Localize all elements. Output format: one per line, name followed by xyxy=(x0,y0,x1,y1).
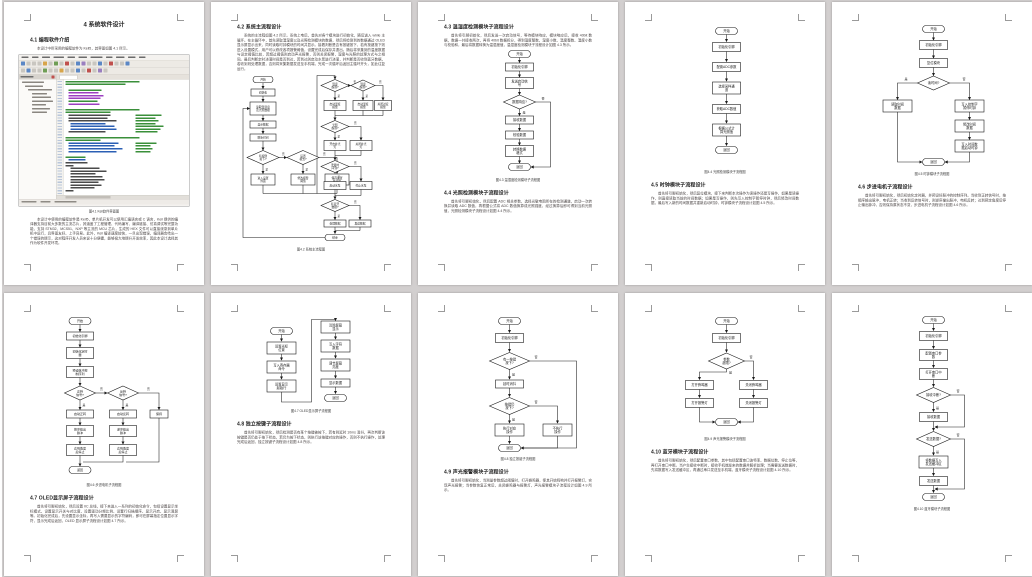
flow-connector xyxy=(522,436,558,448)
toolbar-icon xyxy=(38,69,42,73)
figure-caption: 图4.2 系统主流程图 xyxy=(237,247,385,252)
flow-node-label: 正转信号? xyxy=(76,388,84,397)
clipped-page-sliver xyxy=(0,0,2,577)
menu-label-bar xyxy=(54,57,65,59)
toolbar-icon xyxy=(27,62,31,66)
flowchart-figure: 开始初始化引脚初始化定时器预设脉冲控制序列正转信号?反转信号?启动正转按序输出脉… xyxy=(30,315,180,480)
menu-label-bar xyxy=(139,57,146,59)
document-page-1[interactable]: 4 系统软件设计4.1 编程软件介绍本设计中所采用的编程软件为 Keil5，其界… xyxy=(4,2,204,285)
flowchart-figure: 开始初始化引脚发送启动信号数据响应?接收数据校验数据转换数据格式返回否是 xyxy=(445,49,592,175)
flow-node-label: 读时间? xyxy=(928,80,940,85)
flow-node-label: 获取ADC数值 xyxy=(717,106,738,111)
flow-node-label: 有按键按下? xyxy=(259,154,267,161)
document-page-4[interactable]: 开始初始化引脚配置ADC参数选择采样通道获取ADC数值根据公式计算光照值返回图4… xyxy=(625,2,825,285)
flow-node-label: 达到角度后停止 xyxy=(74,445,86,454)
document-page-5[interactable]: 开始初始化引脚复位模块读时间?读取时间数据写入控制字暂停时钟修改时间数据写入时间… xyxy=(832,2,1032,285)
document-page-2[interactable]: 4.2 系统主流程设计系统的主流程如图 4.2 所示。系统上电后，首先对各个模块… xyxy=(211,2,411,285)
flow-node-label: 返回 xyxy=(516,164,523,169)
flowchart-figure: 开始初始化引脚配置串口参数打开串口中断接收中断?接收数据发送数据?将数据写入发送… xyxy=(859,314,1006,504)
flow-node-label: 浇灌时间到? xyxy=(331,163,339,170)
page-content: 开始设置光标位置写入寄存器命令设置显示起始行清除屏幕显示写入字符数据调节屏幕亮度… xyxy=(237,307,385,576)
flow-connector xyxy=(898,112,923,162)
flow-node-label: 初始化引脚 xyxy=(501,335,518,340)
flow-branch-label: 是 xyxy=(266,168,269,172)
section-heading: 4.2 系统主流程设计 xyxy=(237,23,385,31)
flow-connector xyxy=(738,408,754,423)
menu-label-bar xyxy=(22,57,29,59)
body-paragraph: 首先将引脚初始化，然后检测是否有某个按键被按下，若有则延时 10ms 消抖，再次… xyxy=(237,431,385,445)
figure-caption: 图4.4 光照检测模块子流程图 xyxy=(651,169,799,174)
page-content: 4.2 系统主流程设计系统的主流程如图 4.2 所示。系统上电后，首先对各个模块… xyxy=(237,16,385,285)
margin-crop-mark xyxy=(177,305,184,312)
toolbar-icon xyxy=(104,69,108,73)
flow-node-label: 将数据写入发送缓冲区 xyxy=(925,457,942,466)
flow-node-label: 显示数据 xyxy=(329,380,343,385)
toolbar-icon xyxy=(65,69,69,73)
flow-node-label: 初始化 xyxy=(259,90,267,94)
flow-branch-label: 否 xyxy=(323,152,326,156)
flow-node-label: 关闭报警灯 xyxy=(745,400,762,405)
menu-label-bar xyxy=(116,57,125,59)
flow-node-label: 写入时间数据启动时钟 xyxy=(961,141,978,150)
flow-node-label: 按键仍按下? xyxy=(505,401,515,410)
body-paragraph: 首先将引脚初始化，然后设置 IIC 总线，接下来进入一系列的初始化命令，包括设置… xyxy=(30,505,178,524)
flow-node-label: 延时消抖 xyxy=(503,381,517,386)
flow-node-label: 关闭蜂鸣器 xyxy=(745,382,762,387)
toolbar-icon xyxy=(49,69,53,73)
flow-node-label: 开始 xyxy=(723,318,730,323)
flow-branch-label: 是 xyxy=(306,168,309,172)
flow-branch-label: 否 xyxy=(957,433,960,437)
toolbar-icon xyxy=(115,62,119,66)
flow-node-label: 开始 xyxy=(278,328,285,333)
flow-branch-label: 否 xyxy=(535,355,538,359)
flow-node-label: 配置ADC参数 xyxy=(717,64,738,69)
flow-branch-label: 否 xyxy=(100,387,103,391)
section-heading: 4.1 编程软件介绍 xyxy=(30,36,178,44)
flow-branch-label: 是 xyxy=(338,175,341,179)
margin-crop-mark xyxy=(1005,305,1012,312)
editor-tab xyxy=(60,75,78,79)
toolbar-icon xyxy=(43,69,47,73)
menu-label-bar xyxy=(91,57,103,59)
flow-connector xyxy=(139,393,160,410)
margin-crop-mark xyxy=(591,14,598,21)
menu-label-bar xyxy=(106,57,113,59)
margin-crop-mark xyxy=(1005,264,1012,271)
margin-crop-mark xyxy=(177,14,184,21)
page-content: 开始初始化引脚配置串口参数打开串口中断接收中断?接收数据发送数据?将数据写入发送… xyxy=(858,307,1006,576)
keil-status-bar xyxy=(19,199,189,205)
flow-branch-label: 是 xyxy=(338,214,341,218)
menu-label-bar xyxy=(68,57,76,59)
flow-branch-label: 是 xyxy=(936,449,939,454)
page-content: 开始初始化引脚复位模块读时间?读取时间数据写入控制字暂停时钟修改时间数据写入时间… xyxy=(858,16,1006,285)
flowchart-figure: 开始初始化引脚配置ADC参数选择采样通道获取ADC数值根据公式计算光照值返回 xyxy=(652,25,799,167)
toolbar-icon xyxy=(76,69,80,73)
margin-crop-mark xyxy=(1005,555,1012,562)
flow-node-label: 刷新时间 xyxy=(258,135,269,139)
flow-node-label: 接收中断? xyxy=(926,392,941,397)
margin-crop-mark xyxy=(591,305,598,312)
flow-node-label: 启动反转 xyxy=(117,411,129,416)
flow-branch-label: 是 xyxy=(366,94,369,98)
flow-node-label: 开始 xyxy=(930,317,937,322)
section-heading: 4.9 声光报警模块子流程设计 xyxy=(444,468,592,476)
flow-branch-label: 否 xyxy=(963,77,966,81)
project-panel-header xyxy=(19,74,56,79)
flow-node-label: 读取温湿度及光照数据 xyxy=(256,105,270,112)
toolbar-icon xyxy=(54,62,58,66)
flow-branch-label: 否 xyxy=(354,80,357,84)
flow-branch-label: 是 xyxy=(512,417,515,422)
tree-item xyxy=(32,112,47,114)
toolbar-icon xyxy=(71,62,75,66)
flow-branch-label: 否 xyxy=(354,161,357,165)
toolbar-icon xyxy=(54,69,58,73)
margin-crop-mark xyxy=(591,555,598,562)
flow-branch-label: 否 xyxy=(379,80,382,84)
flow-node-label: 初始化引脚 xyxy=(72,333,87,338)
flow-node-label: 返回 xyxy=(930,159,937,164)
section-heading: 4.3 温湿度检测模块子流程设计 xyxy=(444,23,592,31)
chapter-title: 4 系统软件设计 xyxy=(30,20,178,29)
flow-branch-label: 是 xyxy=(83,403,86,407)
flow-node-label: 复位模块 xyxy=(927,60,941,65)
toolbar-icon xyxy=(126,62,130,66)
toolbar-icon xyxy=(120,62,124,66)
margin-crop-mark xyxy=(384,264,391,271)
document-page-3[interactable]: 4.3 温湿度检测模块子流程设计首先将引脚初始化，然后发送一次启动信号，等待模块… xyxy=(418,2,618,285)
toolbar-icon xyxy=(109,62,113,66)
figure-caption: 图4.8 独立按键子流程图 xyxy=(444,456,592,461)
flow-node-label: 根据公式计算光照值 xyxy=(718,125,735,134)
margin-crop-mark xyxy=(798,305,805,312)
toolbar-icon xyxy=(87,69,91,73)
flow-connector xyxy=(950,83,970,100)
code-area xyxy=(57,79,190,195)
flowchart-figure: 开始初始化引脚参数超限?打开蜂鸣器打开报警灯关闭蜂鸣器关闭报警灯返回是否 xyxy=(652,315,799,434)
flow-connector xyxy=(349,167,361,182)
figure-caption: 图4.1 Keil软件界面图 xyxy=(30,208,178,213)
flow-branch-label: 否 xyxy=(354,200,357,204)
flow-connector xyxy=(375,86,383,101)
flow-connector xyxy=(898,83,918,100)
flow-node-label: 返回 xyxy=(332,395,339,400)
flow-node-label: 有蓝牙数据? xyxy=(331,202,339,209)
menu-label-bar xyxy=(32,57,39,59)
flow-connector xyxy=(349,206,360,220)
flow-node-label: 开始 xyxy=(930,26,937,31)
flow-branch-label: 是 xyxy=(338,135,341,139)
flow-node-label: 初始化引脚 xyxy=(925,333,942,338)
body-paragraph: 首先将引脚初始化，当测量参数超过阈值时，打开蜂鸣器，使其开始鸣响并打开报警灯，实… xyxy=(444,479,592,493)
flow-node-label: 达到角度后停止 xyxy=(117,445,129,454)
flow-node-label: 显示数据 xyxy=(258,122,269,126)
flow-node-label: 接收数据 xyxy=(513,117,527,122)
flow-node-label: 初始化引脚 xyxy=(718,44,735,49)
body-paragraph: 本设计中使用的编程软件是 Keil5，单片机开发可以使用汇编语言或 C 语言，K… xyxy=(30,217,178,246)
tree-item xyxy=(25,85,43,87)
flow-node-label: 返回 xyxy=(77,467,83,472)
tree-item xyxy=(28,89,52,91)
flow-node-label: 校验数据 xyxy=(513,132,527,137)
section-heading: 4.4 光照检测模块子流程设计 xyxy=(444,188,592,196)
flow-branch-label: 否 xyxy=(354,121,357,125)
flow-connector xyxy=(530,406,558,423)
flow-connector xyxy=(349,127,361,141)
page-content: 开始初始化引脚配置ADC参数选择采样通道获取ADC数值根据公式计算光照值返回图4… xyxy=(651,16,799,285)
flow-connector xyxy=(83,456,123,463)
flow-connector xyxy=(531,102,551,167)
section-heading: 4.7 OLED显示屏子流程设计 xyxy=(30,494,178,502)
margin-crop-mark xyxy=(798,264,805,271)
flow-node-label: 开始 xyxy=(723,28,730,33)
document-page-7[interactable]: 开始设置光标位置写入寄存器命令设置显示起始行清除屏幕显示写入字符数据调节屏幕亮度… xyxy=(211,293,411,576)
flow-node-label: 停止水泵 xyxy=(356,183,367,187)
flow-connector xyxy=(945,152,970,162)
body-paragraph: 首先将引脚初始化，然后复位模块，接下来判断本次操作为读操作还是写操作，如果是读操… xyxy=(651,192,799,206)
margin-crop-mark xyxy=(177,264,184,271)
margin-crop-mark xyxy=(1005,14,1012,21)
figure-caption: 图4.6 步进电机子流程图 xyxy=(30,482,178,487)
flow-node-label: 返回 xyxy=(930,494,937,499)
flow-node-label: 返回 xyxy=(723,147,730,152)
flow-connector xyxy=(700,408,716,423)
flow-node-label: 打开蜂鸣器 xyxy=(691,382,708,387)
tree-item xyxy=(32,108,50,110)
body-paragraph: 系统的主流程如图 4.2 所示。系统上电后，首先对各个模块进行初始化，随后进入 … xyxy=(237,34,385,72)
flow-node-label: 返回 xyxy=(506,445,513,450)
margin-crop-mark xyxy=(177,555,184,562)
toolbar-icon xyxy=(32,62,36,66)
toolbar-icon xyxy=(93,62,97,66)
flow-branch-label: 是 xyxy=(523,109,526,114)
flow-node-label: 启动水泵 xyxy=(330,183,341,187)
flowchart-figure: 开始设置光标位置写入寄存器命令设置显示起始行清除屏幕显示写入字符数据调节屏幕亮度… xyxy=(238,317,385,406)
flow-connector xyxy=(745,361,754,380)
toolbar-icon xyxy=(65,62,69,66)
flow-node-label: 写入控制字暂停时钟 xyxy=(961,101,978,110)
flow-node-label: 数据响应? xyxy=(512,99,527,104)
margin-crop-mark xyxy=(384,305,391,312)
flow-node-label: 初始化引脚 xyxy=(925,42,942,47)
menu-label-bar xyxy=(42,57,50,59)
flow-branch-label: 是 xyxy=(512,372,515,377)
toolbar-icon xyxy=(98,69,102,73)
document-page-9[interactable]: 开始初始化引脚参数超限?打开蜂鸣器打开报警灯关闭蜂鸣器关闭报警灯返回是否图4.9… xyxy=(625,293,825,576)
keil-project-tree xyxy=(19,74,57,199)
section-heading: 4.8 独立按键子流程设计 xyxy=(237,420,385,428)
tree-item xyxy=(32,100,53,102)
page-content: 开始初始化引脚初始化定时器预设脉冲控制序列正转信号?反转信号?启动正转按序输出脉… xyxy=(30,307,178,576)
toolbar-icon xyxy=(104,62,108,66)
toolbar-icon xyxy=(82,62,86,66)
section-heading: 4.10 蓝牙模块子流程设计 xyxy=(651,448,799,456)
keil-ide-screenshot xyxy=(19,54,190,206)
toolbar-icon xyxy=(32,69,36,73)
figure-caption: 图4.9 声光报警模块子流程图 xyxy=(651,436,799,441)
flow-node-label: 开始 xyxy=(506,318,513,323)
flow-node-label: 初始化引脚 xyxy=(718,335,735,340)
document-page-8[interactable]: 开始初始化引脚有一按键按下?延时消抖按键仍按下?执行对应操作不执行操作返回是否是… xyxy=(418,293,618,576)
flow-branch-label: 是 xyxy=(126,403,129,407)
margin-crop-mark xyxy=(798,555,805,562)
flow-node-label: 初始化引脚 xyxy=(511,64,528,69)
tree-item xyxy=(22,82,44,84)
flow-node-label: 开始 xyxy=(516,51,523,56)
section-heading: 4.6 步进电机子流程设计 xyxy=(858,183,1006,191)
flow-node-label: 开始 xyxy=(77,318,83,323)
flow-branch-label: 是 xyxy=(338,94,341,98)
toolbar-icon xyxy=(49,62,53,66)
flow-node-label: 发送数据 xyxy=(355,221,366,225)
body-paragraph: 首先将引脚初始化，然后初始化定时器，并预设好脉冲的控制序列。当收到正转信号时，按… xyxy=(858,194,1006,208)
flow-node-label: 启动正转 xyxy=(74,411,86,416)
toolbar-icon xyxy=(43,62,47,66)
toolbar-icon xyxy=(87,62,91,66)
document-page-10[interactable]: 开始初始化引脚配置串口参数打开串口中断接收中断?接收数据发送数据?将数据写入发送… xyxy=(832,293,1032,576)
toolbar-icon xyxy=(82,69,86,73)
keil-window-body xyxy=(19,74,189,199)
flow-branch-label: 否 xyxy=(957,389,960,393)
flow-node-label: 保持 xyxy=(156,411,162,416)
flowchart-figure: 开始初始化引脚复位模块读时间?读取时间数据写入控制字暂停时钟修改时间数据写入时间… xyxy=(859,23,1006,169)
margin-crop-mark xyxy=(591,264,598,271)
figure-caption: 图4.10 蓝牙模块子流程图 xyxy=(858,506,1006,511)
body-paragraph: 首先将引脚初始化，然后配置串口参数，其中包括配置串口波特率、数据位数、停止位等，… xyxy=(651,459,799,473)
flow-node-label: 接收数据 xyxy=(927,414,941,419)
flow-connector xyxy=(700,369,727,380)
flow-branch-label: 是 xyxy=(936,405,939,410)
close-icon xyxy=(52,75,55,78)
section-heading: 4.5 时钟模块子流程设计 xyxy=(651,181,799,189)
menu-label-bar xyxy=(128,57,136,59)
toolbar-icon xyxy=(27,69,31,73)
flow-branch-label: 是 xyxy=(905,76,908,81)
menu-label-bar xyxy=(79,57,88,59)
page-content: 开始初始化引脚参数超限?打开蜂鸣器打开报警灯关闭蜂鸣器关闭报警灯返回是否图4.9… xyxy=(651,307,799,576)
panel-title-bar xyxy=(21,76,34,78)
flow-branch-label: 否 xyxy=(282,152,285,156)
flow-node-label: 发送数据? xyxy=(926,436,941,441)
figure-caption: 图4.7 OLED显示屏子流程图 xyxy=(237,408,385,413)
toolbar-icon xyxy=(60,69,64,73)
tree-item xyxy=(32,97,51,99)
tree-item xyxy=(32,93,47,95)
toolbar-icon xyxy=(38,62,42,66)
page-content: 开始初始化引脚有一按键按下?延时消抖按键仍按下?执行对应操作不执行操作返回是否是… xyxy=(444,307,592,576)
flow-branch-label: 是 xyxy=(729,370,732,375)
toolbar-icon xyxy=(93,69,97,73)
flow-node-label: 返回 xyxy=(723,419,730,424)
document-page-6[interactable]: 开始初始化引脚初始化定时器预设脉冲控制序列正转信号?反转信号?启动正转按序输出脉… xyxy=(4,293,204,576)
toolbar-icon xyxy=(98,62,102,66)
flow-node-label: 处理数据 xyxy=(330,221,341,225)
toolbar-icon xyxy=(71,69,75,73)
keil-toolbar-2 xyxy=(19,67,189,74)
flowchart-figure: 开始初始化读取温湿度及光照数据显示数据刷新时间有按键按下?设置模式?进入设置界面… xyxy=(237,73,392,245)
flow-branch-label: 否 xyxy=(147,387,150,391)
keil-toolbar-1 xyxy=(19,60,189,67)
body-paragraph: 首先将引脚初始化，然后配置 ADC 相关参数，选择光敏电阻所在的检测通道，启动一… xyxy=(444,199,592,213)
toolbar-icon xyxy=(21,69,25,73)
keil-code-editor xyxy=(57,74,190,199)
tree-item xyxy=(32,104,46,106)
toolbar-icon xyxy=(21,62,25,66)
toolbar-icon xyxy=(76,62,80,66)
figure-caption: 图4.3 温湿度检测模块子流程图 xyxy=(444,177,592,182)
margin-crop-mark xyxy=(384,555,391,562)
flow-node-label: 结束 xyxy=(332,235,338,239)
page-grid-view: 4 系统软件设计4.1 编程软件介绍本设计中所采用的编程软件为 Keil5，其界… xyxy=(0,0,1032,577)
horizontal-scrollbar[interactable] xyxy=(57,195,190,199)
flow-branch-label: 否 xyxy=(535,400,538,404)
margin-crop-mark xyxy=(384,14,391,21)
page-content: 4.3 温湿度检测模块子流程设计首先将引脚初始化，然后发送一次启动信号，等待模块… xyxy=(444,16,592,285)
flow-node-label: 发送数据 xyxy=(927,478,941,483)
body-paragraph: 本设计中所采用的编程软件为 Keil5，其界面如图 4.1 所示。 xyxy=(30,47,178,52)
page-content: 4 系统软件设计4.1 编程软件介绍本设计中所采用的编程软件为 Keil5，其界… xyxy=(30,16,178,285)
figure-caption: 图4.5 时钟模块子流程图 xyxy=(858,171,1006,176)
flowchart-figure: 开始初始化引脚有一按键按下?延时消抖按键仍按下?执行对应操作不执行操作返回是否是… xyxy=(445,315,592,454)
toolbar-icon xyxy=(60,62,64,66)
body-paragraph: 首先将引脚初始化，然后发送一次启动信号，等待模块响应，模块响应后，接收 40bi… xyxy=(444,34,592,48)
flow-branch-label: 否 xyxy=(750,355,753,359)
flow-node-label: 开始 xyxy=(260,77,266,81)
flow-node-label: 打开报警灯 xyxy=(691,400,708,405)
flow-node-label: 反转信号? xyxy=(119,388,127,397)
flow-node-label: 参数超限? xyxy=(722,356,730,365)
flow-branch-label: 否 xyxy=(542,96,545,100)
margin-crop-mark xyxy=(798,14,805,21)
